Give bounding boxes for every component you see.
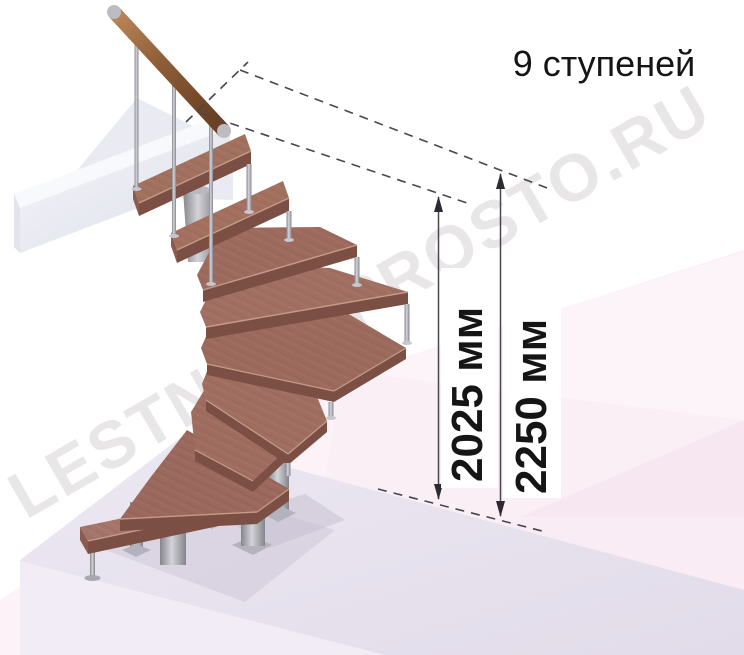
connector-post-4-3 (286, 463, 291, 476)
column-base-neck (241, 536, 265, 546)
scene-canvas: LESTNICA-PROSTO.RU (0, 0, 744, 655)
support-rod-base (85, 575, 101, 581)
connector-flange-3 (352, 283, 362, 287)
page-title: 9 ступеней (513, 43, 695, 84)
handrail-cap-bottom (217, 124, 231, 138)
baluster-3-base (206, 282, 216, 286)
connector-post-5-4 (329, 402, 334, 418)
connector-post-7-6 (355, 257, 360, 285)
handrail-cap-top (107, 5, 121, 19)
baluster-2 (172, 75, 176, 235)
baluster-2-base (169, 234, 179, 238)
dimension-label-2025: 2025 мм (443, 307, 492, 482)
baluster-3 (209, 121, 213, 283)
staircase-illustration: LESTNICA-PROSTO.RU (0, 0, 744, 655)
connector-post-9-8 (247, 164, 252, 212)
connector-flange-2 (284, 238, 294, 242)
connector-post-6-5 (405, 304, 410, 343)
dimension-label-2250: 2250 мм (507, 319, 556, 494)
connector-post-8-7 (287, 211, 292, 240)
baluster-1-base (132, 187, 142, 191)
connector-flange-5 (326, 416, 336, 420)
baluster-1 (135, 28, 139, 188)
connector-flange-4 (402, 341, 412, 345)
connector-flange-1 (244, 210, 254, 214)
